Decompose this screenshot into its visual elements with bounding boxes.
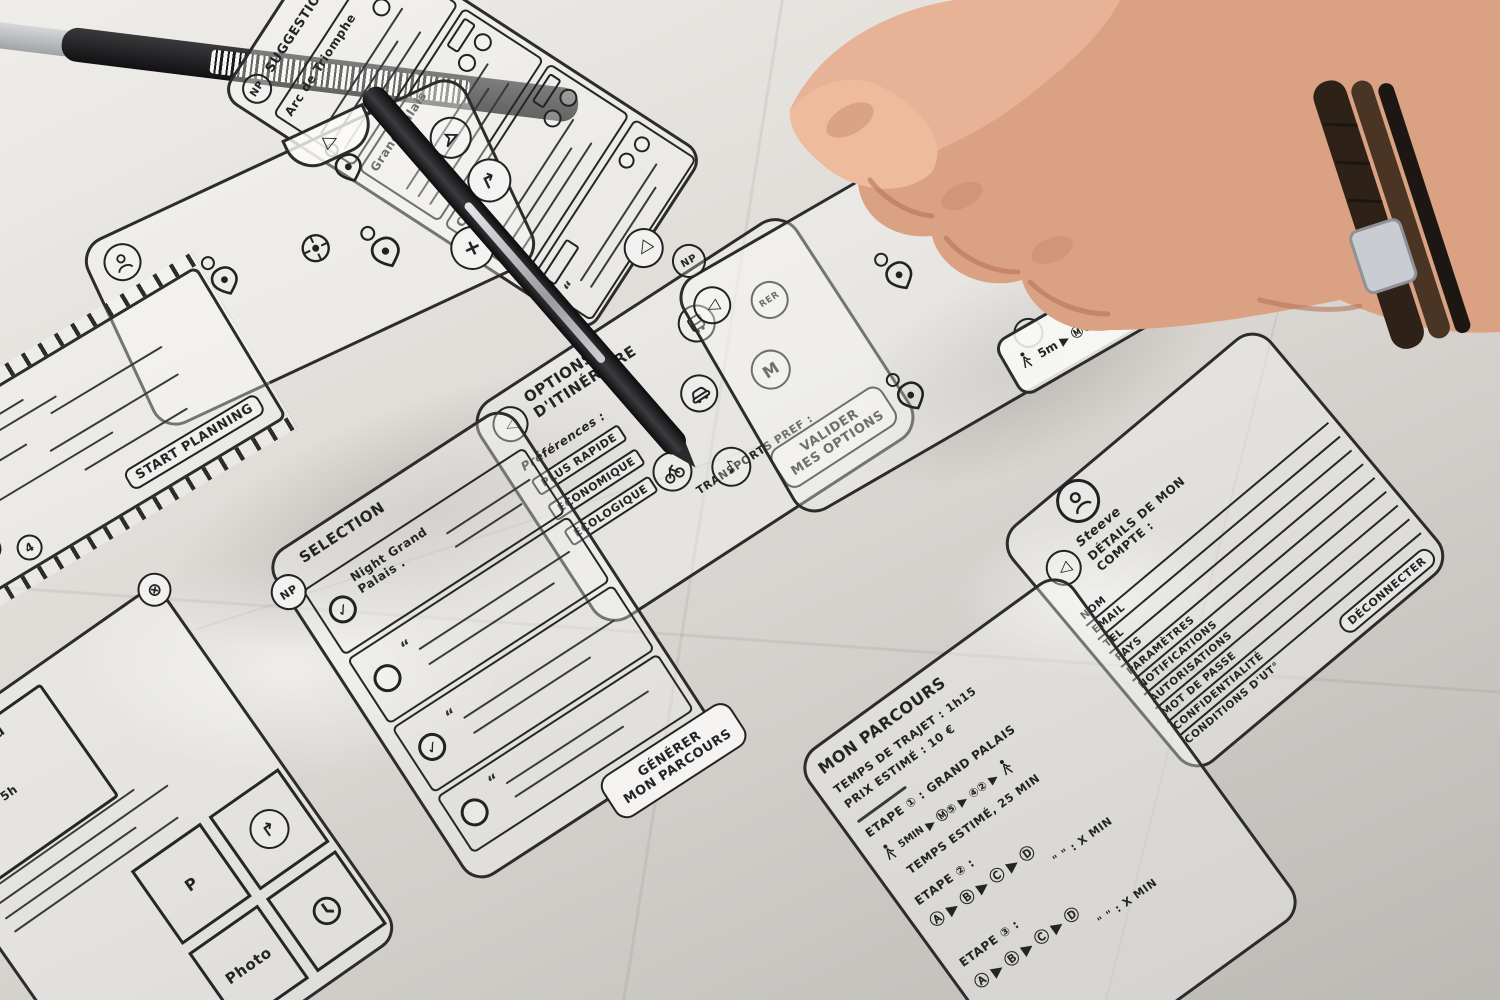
hand-holding-pen: [700, 0, 1500, 360]
avatar: [616, 150, 638, 172]
step3-duration: " " : X MIN: [1095, 876, 1160, 928]
step-4-indicator[interactable]: 4: [12, 530, 48, 566]
map-pin-icon[interactable]: [350, 212, 419, 287]
like-icon[interactable]: [540, 106, 565, 131]
compass-icon: [292, 224, 340, 272]
checked-checkbox[interactable]: ✓: [324, 590, 363, 629]
add-icon[interactable]: [470, 30, 495, 55]
event-hours: 22h - 5h: [0, 782, 20, 828]
step-3-indicator[interactable]: 3: [0, 531, 6, 567]
like-icon[interactable]: [369, 0, 394, 20]
add-icon[interactable]: [556, 85, 581, 110]
clock-icon: [303, 888, 350, 935]
arrow-icon: ↱: [241, 801, 297, 857]
step2-duration: " " : X MIN: [1050, 814, 1115, 866]
app-logo: NP: [236, 68, 277, 109]
checked-checkbox[interactable]: ✓: [413, 728, 452, 767]
card-tag-chip: [446, 17, 476, 53]
like-icon[interactable]: [455, 51, 480, 76]
unchecked-checkbox[interactable]: [368, 659, 407, 698]
card-tag-chip: [532, 73, 562, 109]
profile-icon[interactable]: [97, 237, 147, 287]
avatar: [631, 133, 653, 155]
photo-of-paper-wireframes: { "icons": { "np_logo": "NP", "metro_m":…: [0, 0, 1500, 1000]
map-pin-icon[interactable]: [877, 358, 943, 428]
unchecked-checkbox[interactable]: [455, 793, 494, 832]
transport-car-icon[interactable]: [673, 367, 726, 420]
